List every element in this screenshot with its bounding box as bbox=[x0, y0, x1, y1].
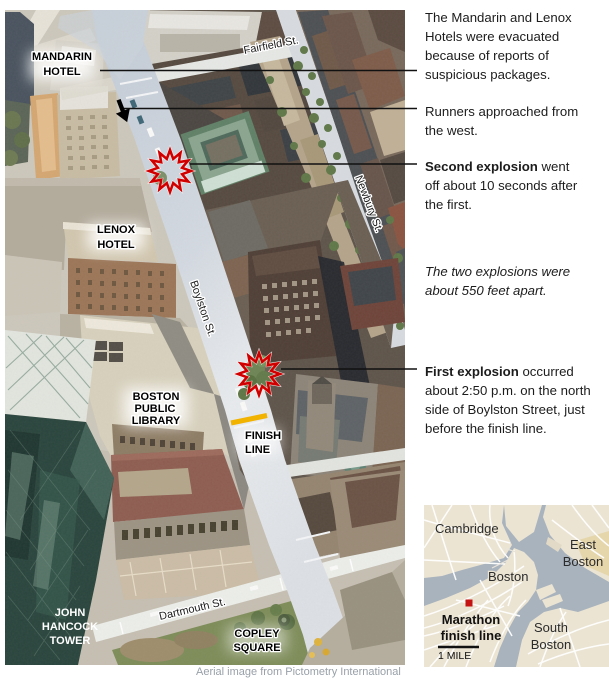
svg-text:South: South bbox=[534, 620, 568, 635]
svg-text:HANCOCK: HANCOCK bbox=[42, 621, 98, 633]
svg-text:PUBLIC: PUBLIC bbox=[135, 403, 176, 415]
svg-text:LENOX: LENOX bbox=[97, 224, 136, 236]
svg-text:LIBRARY: LIBRARY bbox=[132, 415, 181, 427]
svg-text:BOSTON: BOSTON bbox=[133, 391, 180, 403]
svg-text:finish line: finish line bbox=[441, 628, 502, 643]
svg-text:Boston: Boston bbox=[488, 569, 528, 584]
svg-text:Cambridge: Cambridge bbox=[435, 521, 499, 536]
svg-text:East: East bbox=[570, 537, 596, 552]
svg-text:Boston: Boston bbox=[531, 637, 571, 652]
svg-text:COPLEY: COPLEY bbox=[234, 628, 280, 640]
svg-text:JOHN: JOHN bbox=[55, 607, 86, 619]
svg-text:SQUARE: SQUARE bbox=[233, 642, 280, 654]
svg-text:FINISH: FINISH bbox=[245, 430, 281, 442]
svg-text:LINE: LINE bbox=[245, 444, 270, 456]
svg-text:HOTEL: HOTEL bbox=[43, 66, 81, 78]
svg-text:MANDARIN: MANDARIN bbox=[32, 51, 92, 63]
svg-text:1 MILE: 1 MILE bbox=[438, 650, 471, 662]
svg-text:HOTEL: HOTEL bbox=[97, 239, 135, 251]
svg-text:Marathon: Marathon bbox=[442, 612, 501, 627]
svg-text:Boston: Boston bbox=[563, 554, 603, 569]
svg-text:TOWER: TOWER bbox=[50, 635, 91, 647]
